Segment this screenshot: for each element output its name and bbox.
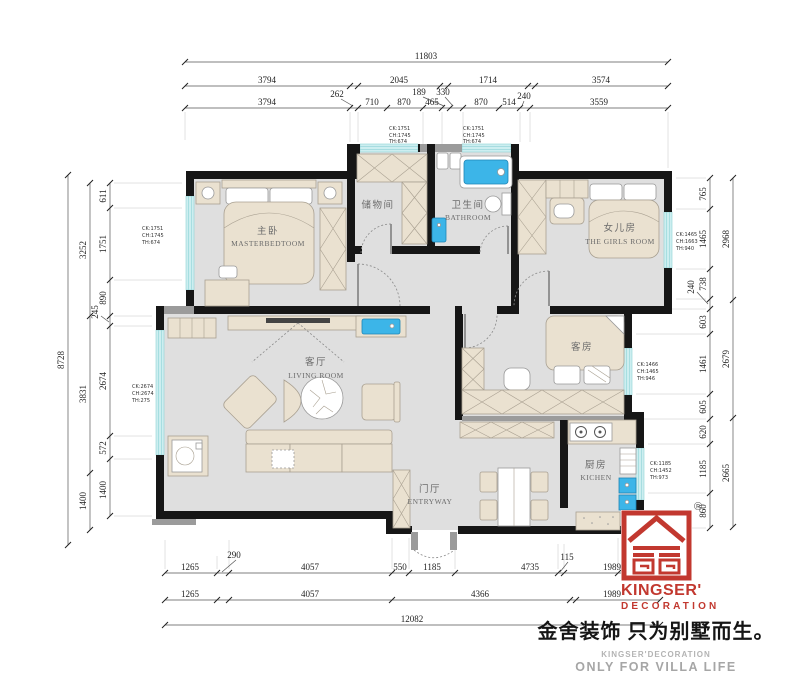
wardrobe [518,180,546,254]
svg-text:2045: 2045 [390,75,409,85]
svg-text:3794: 3794 [258,97,277,107]
faucet-icon [625,500,629,504]
room-label-master-en: MASTERBEDTOOM [231,239,305,248]
door-entry [411,532,457,558]
storage-cabinet [402,182,427,244]
brand-name: KINGSER' [621,583,800,599]
svg-text:1465: 1465 [698,230,708,249]
stool [219,266,237,278]
kitchen-shelf [620,448,636,474]
svg-text:514: 514 [502,97,516,107]
svg-text:572: 572 [98,441,108,455]
sofa-seat [342,444,392,472]
svg-text:1714: 1714 [479,75,498,85]
svg-text:CH:1465: CH:1465 [637,369,659,375]
svg-text:4057: 4057 [301,562,320,572]
svg-text:1400: 1400 [98,481,108,500]
dimensions-left: 8728 3252 3831 1400 611 1751 890 245 267… [56,172,113,548]
brand-tagline-en2: ONLY FOR VILLA LIFE [536,660,776,674]
svg-text:2665: 2665 [721,464,731,483]
window-guest-right [624,348,632,395]
svg-text:290: 290 [227,550,241,560]
svg-text:1400: 1400 [78,492,88,511]
room-label-bathroom-en: BATHROOM [445,213,491,222]
dining-chair [480,472,497,492]
svg-text:1989: 1989 [603,589,622,599]
svg-text:1185: 1185 [423,562,441,572]
room-label-entry-zh: 门厅 [419,483,441,495]
svg-text:CK:1751: CK:1751 [142,226,163,232]
dining-chair [531,500,548,520]
svg-text:1989: 1989 [603,562,622,572]
room-label-kitchen-zh: 厨房 [585,459,607,471]
room-label-bathroom-zh: 卫生间 [451,199,484,211]
svg-text:CK:1751: CK:1751 [463,126,484,132]
svg-text:CH:1745: CH:1745 [142,233,164,239]
window-label-master-left: CK:1751 CH:1745 TH:674 [141,226,164,246]
svg-text:3574: 3574 [592,75,611,85]
pillow [624,184,656,200]
svg-text:CH:1452: CH:1452 [650,468,672,474]
chair [504,368,530,390]
svg-text:CH:2674: CH:2674 [132,391,154,397]
svg-text:4057: 4057 [301,589,320,599]
svg-text:4366: 4366 [471,589,490,599]
cabinet [462,348,484,390]
floor-plan-canvas: 主卧 MASTERBEDTOOM 储物间 卫生间 BATHROOM 女儿房 TH… [0,0,800,693]
svg-text:2679: 2679 [721,350,731,369]
svg-text:870: 870 [397,97,411,107]
registered-trademark-icon: ® [694,501,702,513]
svg-text:3831: 3831 [78,385,88,403]
svg-text:CK:1751: CK:1751 [389,126,410,132]
window-girls-right [664,212,672,268]
room-label-master-zh: 主卧 [257,225,279,237]
svg-text:262: 262 [330,89,344,99]
window-master-left [186,196,194,290]
faucet-icon [437,223,440,226]
pillow [584,366,610,384]
toilet [485,196,501,212]
svg-text:TH:973: TH:973 [649,475,668,481]
kingser-logo-icon [621,510,692,581]
svg-text:240: 240 [686,280,696,294]
svg-text:2968: 2968 [721,230,731,249]
svg-text:1265: 1265 [181,589,200,599]
brand-tagline-zh: 金舍装饰 只为别墅而生。 [536,615,776,644]
faucet-icon [390,324,394,328]
bathtub-drain-icon [498,169,505,176]
svg-text:TH:674: TH:674 [462,139,481,145]
dimensions-top: 11803 3794 2045 1714 3574 262 3794 710 8… [182,51,671,111]
sofa-throw [272,450,294,468]
toilet-tank [502,193,511,215]
svg-text:2674: 2674 [98,372,108,391]
room-label-girls-en: THE GIRLS ROOM [585,237,655,246]
svg-text:611: 611 [98,189,108,202]
svg-text:3252: 3252 [78,241,88,259]
svg-text:245: 245 [90,305,100,319]
low-cabinet [462,390,624,414]
room-label-guest-zh: 客房 [571,341,593,353]
svg-text:3794: 3794 [258,75,277,85]
kitchen-counter [576,512,620,530]
svg-text:CK:1185: CK:1185 [650,461,671,467]
svg-text:3559: 3559 [590,97,609,107]
chair [554,204,574,218]
pillow [590,184,622,200]
window-label-bath-top: CK:1751 CH:1745 TH:674 [462,126,485,145]
shelf [546,180,588,198]
svg-text:738: 738 [698,277,708,291]
window-storage-top [360,144,418,152]
brand-subtitle: DECORATION [621,602,800,612]
svg-text:8728: 8728 [56,351,66,370]
svg-text:CK:1465: CK:1465 [676,232,697,238]
window-label-guest-right: CK:1466 CH:1465 TH:946 [636,362,659,382]
room-label-entry-en: ENTRYWAY [408,497,453,506]
svg-text:1461: 1461 [698,355,708,373]
svg-text:TH:275: TH:275 [131,398,150,404]
svg-text:890: 890 [98,291,108,305]
svg-text:11803: 11803 [415,51,438,61]
bed-headboard [222,180,316,188]
svg-text:710: 710 [365,97,379,107]
svg-text:4735: 4735 [521,562,540,572]
svg-text:765: 765 [698,187,708,201]
svg-text:870: 870 [474,97,488,107]
lamp-icon [202,187,214,199]
dining-chair [480,500,497,520]
window-label-living-left: CK:2674 CH:2674 TH:275 [131,384,154,404]
room-label-kitchen-en: KICHEN [580,473,611,482]
window-living-left [156,330,164,455]
storage-cabinet [357,154,427,182]
dimensions-right: 765 1465 738 240 603 1461 605 620 1185 8… [686,175,736,531]
svg-text:1751: 1751 [98,235,108,253]
shower-fixture [450,153,461,169]
svg-text:603: 603 [698,315,708,329]
svg-text:605: 605 [698,400,708,414]
svg-text:115: 115 [560,552,574,562]
sofa-seat [290,444,342,472]
lamp-icon [324,187,336,199]
bathroom-sink [432,218,446,242]
svg-text:TH:674: TH:674 [141,240,160,246]
coffee-table [301,377,343,419]
tv [266,318,330,323]
svg-text:CK:1466: CK:1466 [637,362,658,368]
sofa-back [246,430,392,444]
wardrobe [320,208,346,290]
hall-vanity [356,316,406,337]
window-label-storage-top: CK:1751 CH:1745 TH:674 [388,126,411,145]
svg-text:330: 330 [436,87,450,97]
svg-text:1265: 1265 [181,562,200,572]
dresser [205,280,249,306]
svg-text:TH:674: TH:674 [388,139,407,145]
window-kitchen-right [636,448,644,500]
window-label-kitchen-right: CK:1185 CH:1452 TH:973 [649,461,672,481]
svg-text:550: 550 [393,562,407,572]
brand-name-block: KINGSER' DECORATION [621,583,800,612]
svg-text:189: 189 [412,87,426,97]
pillow [554,366,580,384]
dining-chair [531,472,548,492]
window-label-girls-right: CK:1465 CH:1663 TH:940 [675,232,698,252]
room-label-living-zh: 客厅 [305,356,327,368]
svg-text:240: 240 [517,91,531,101]
svg-text:TH:940: TH:940 [675,246,694,252]
window-bath-top [462,144,511,152]
room-label-living-en: LIVING ROOM [288,371,344,380]
brand-tagline-en1: KINGSER'DECORATION [536,650,776,659]
room-label-storage-zh: 储物间 [361,199,394,211]
svg-text:CH:1663: CH:1663 [676,239,698,245]
svg-text:TH:946: TH:946 [636,376,655,382]
svg-text:620: 620 [698,425,708,439]
room-label-girls-zh: 女儿房 [603,222,636,234]
svg-text:CK:2674: CK:2674 [132,384,153,390]
shower-fixture [437,153,448,169]
svg-text:12082: 12082 [401,614,424,624]
side-chair [362,384,396,420]
faucet-icon [625,483,629,487]
svg-text:1185: 1185 [698,460,708,478]
